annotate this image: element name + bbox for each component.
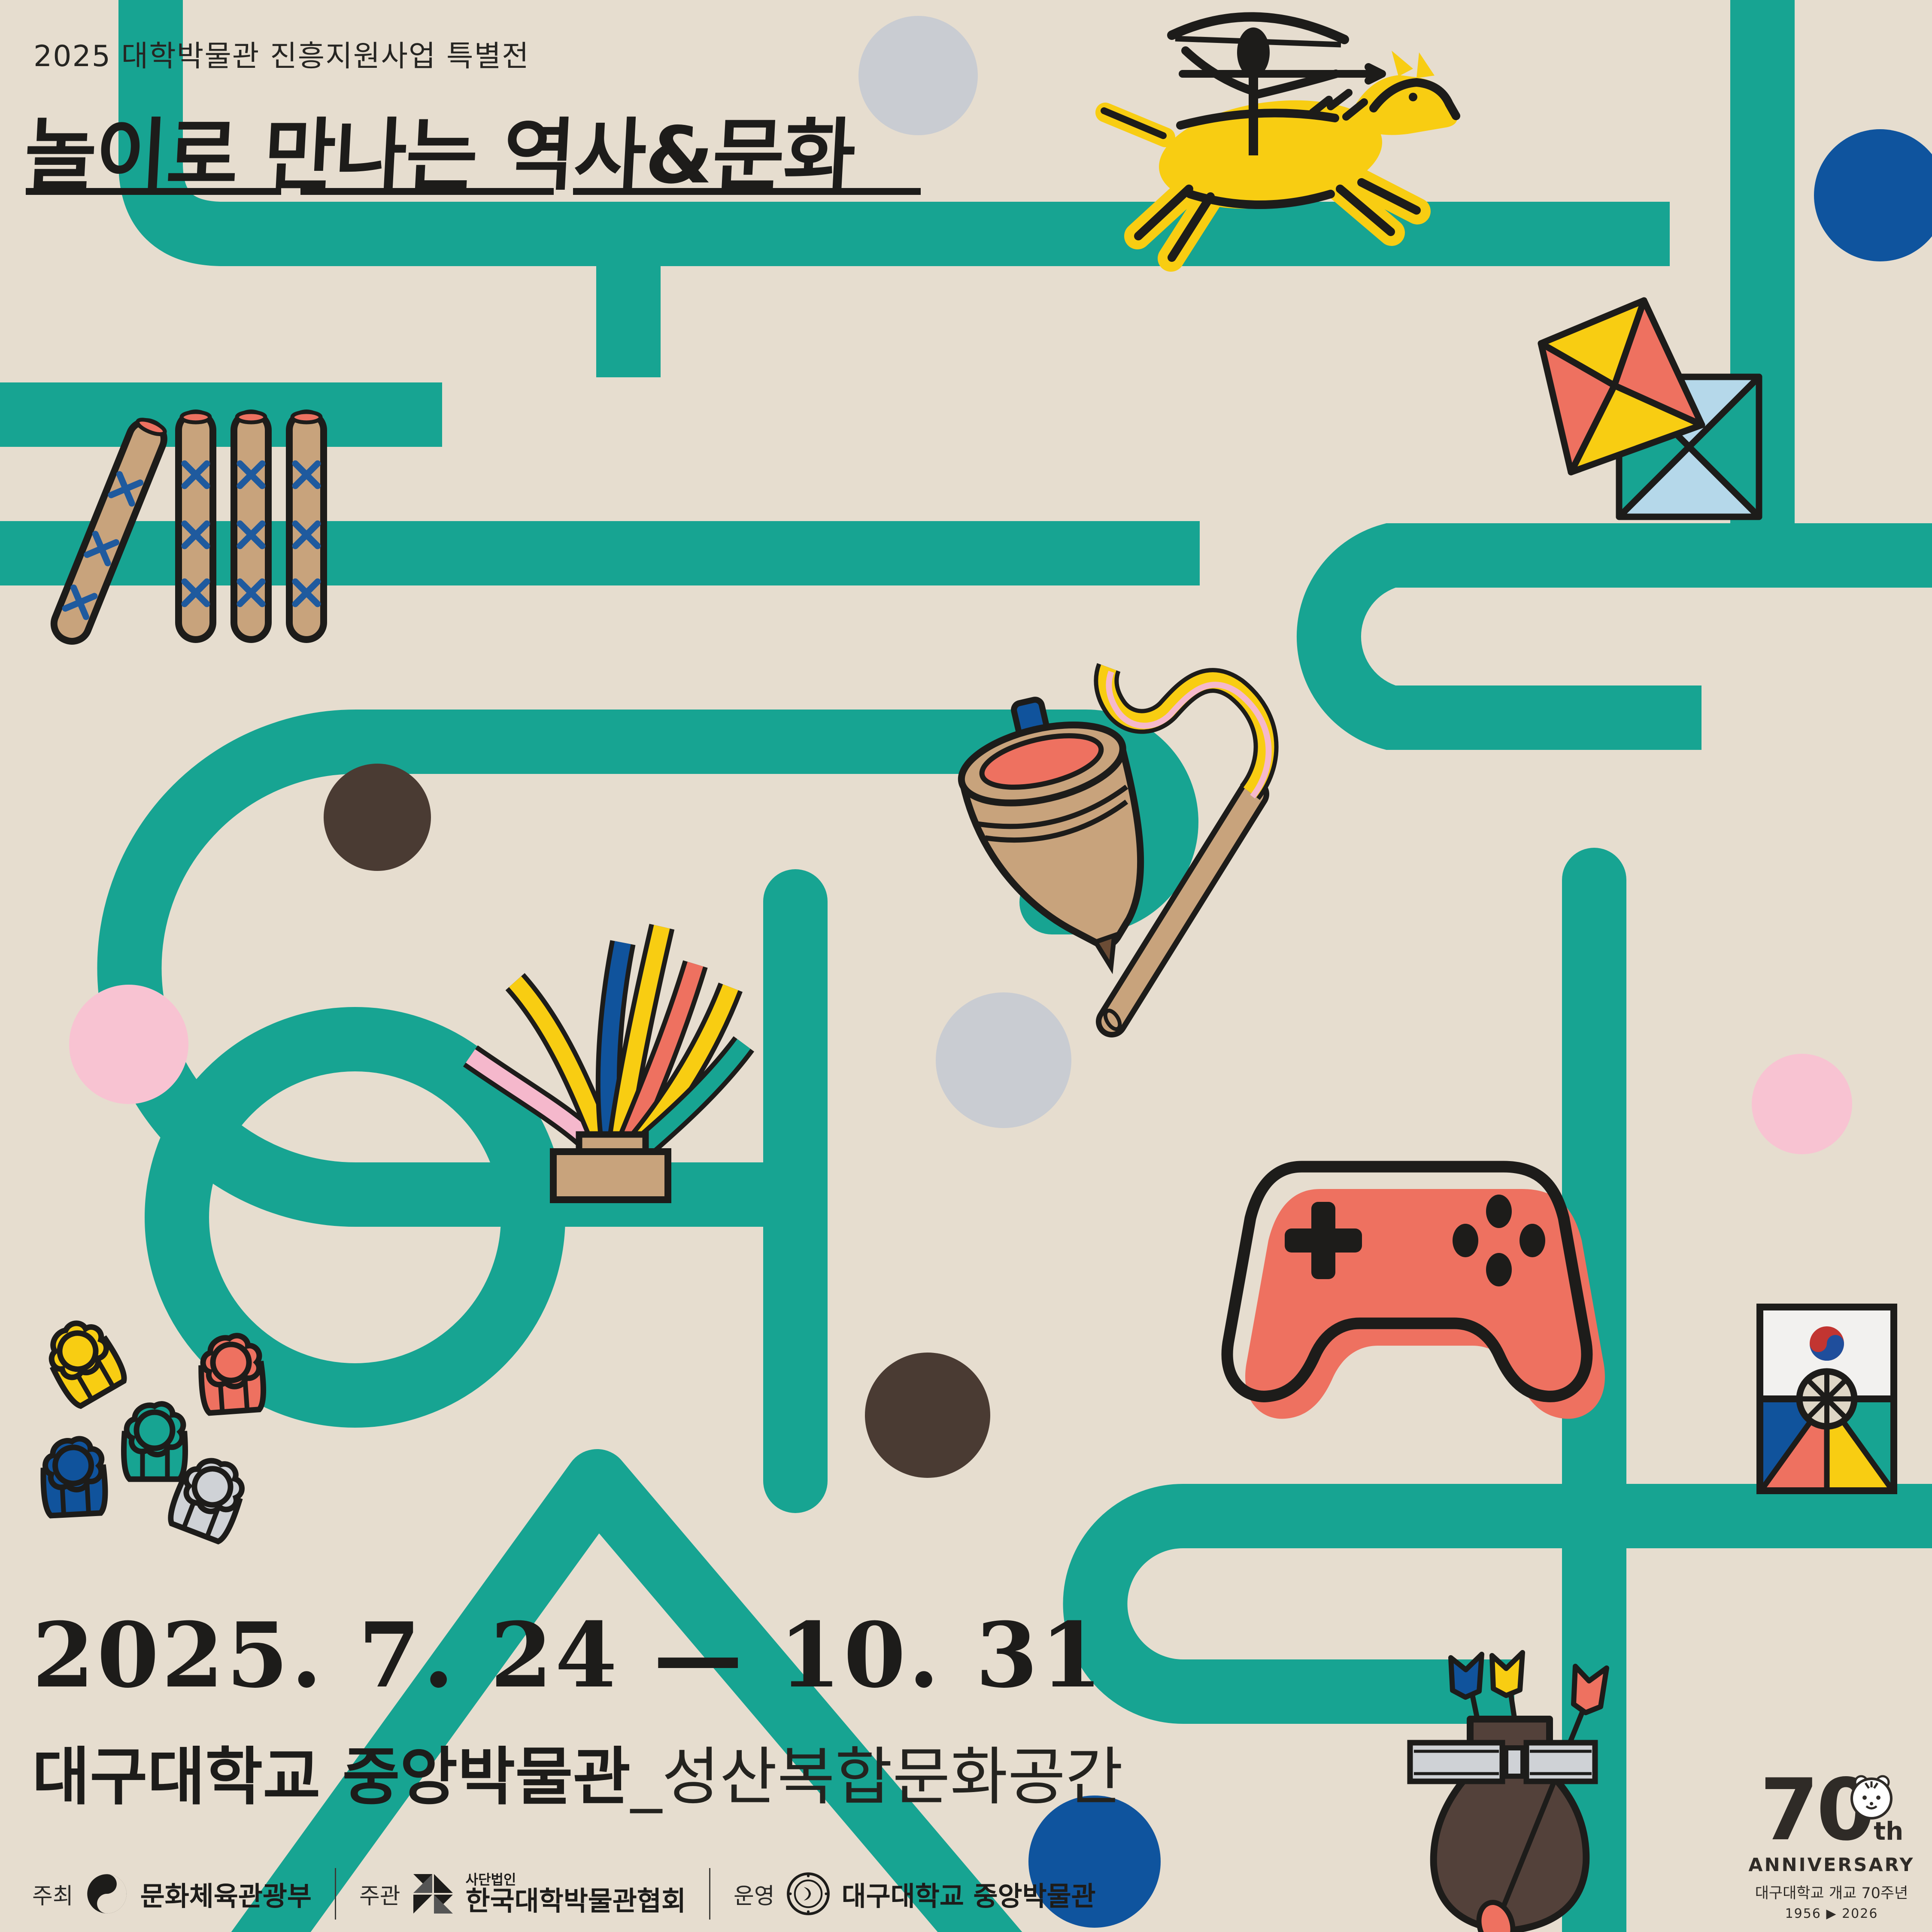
taegeuk-symbol [1810, 1326, 1844, 1361]
ddakji-icon [1760, 1307, 1894, 1491]
yut-stick [234, 412, 268, 640]
credit-role: 주관 [359, 1878, 400, 1910]
credit-role: 운영 [734, 1878, 775, 1910]
venue-primary: 대구대학교 중앙박물관 [32, 1741, 631, 1814]
date-range: 2025. 7. 24 — 10. 31 [32, 1603, 1105, 1708]
flower-piece-blue [41, 1438, 106, 1516]
venue-line: 대구대학교 중앙박물관_성산복합문화공간 [32, 1726, 1123, 1817]
credit-org: 문화체육관광부 [140, 1874, 312, 1913]
credit-divider [335, 1868, 336, 1920]
yut-stick [179, 412, 213, 640]
credit-operator: 운영 대구대학교 중앙박물관 [734, 1871, 1096, 1916]
gamepad-icon [1227, 1167, 1605, 1419]
flower-pieces-icon [38, 1313, 265, 1544]
taegeuk-logo-icon [85, 1871, 129, 1916]
credit-organizer: 주관 사단법인 한국대학박물관협회 [359, 1872, 686, 1915]
credit-divider [709, 1868, 710, 1920]
eyebrow-label: 2025 대학박물관 진흥지원사업 특별전 [33, 32, 530, 75]
pinwheel-logo-icon [412, 1872, 455, 1915]
kite-icon [1541, 300, 1759, 517]
flower-piece-yellow [38, 1313, 129, 1409]
credit-org-prefix: 사단법인 [466, 1873, 686, 1887]
wheel-symbol [1799, 1371, 1854, 1426]
anniversary-line1: 대구대학교 개교 70주년 [1755, 1881, 1908, 1903]
credit-host: 주최 문화체육관광부 [32, 1871, 312, 1916]
anniversary-block: 70th ANNIVERSARY 대구대학교 개교 70주년 1956 ▶ 20… [1744, 1772, 1920, 1921]
anniversary-tiger-icon [1845, 1773, 1898, 1826]
yut-stick [289, 412, 324, 640]
title-underline [300, 188, 554, 195]
credit-org: 한국대학박물관협회 [466, 1887, 686, 1915]
anniversary-years: 1956 ▶ 2026 [1785, 1906, 1878, 1921]
anniversary-number: 70th [1760, 1772, 1904, 1848]
university-seal-icon [786, 1871, 831, 1916]
title-underline [573, 188, 921, 195]
title-underline [26, 188, 281, 195]
credits-bar: 주최 문화체육관광부 주관 사단법인 한국대학박물관협회 운영 [32, 1868, 1096, 1920]
poster: 2025 대학박물관 진흥지원사업 특별전 놀이로 만나는 역사&문화 2025… [0, 0, 1932, 1932]
venue-secondary: _성산복합문화공간 [631, 1741, 1123, 1814]
credit-role: 주최 [32, 1878, 73, 1910]
tuho-band [1410, 1743, 1595, 1781]
flower-piece-teal [124, 1404, 185, 1479]
credit-org: 대구대학교 중앙박물관 [842, 1874, 1096, 1913]
